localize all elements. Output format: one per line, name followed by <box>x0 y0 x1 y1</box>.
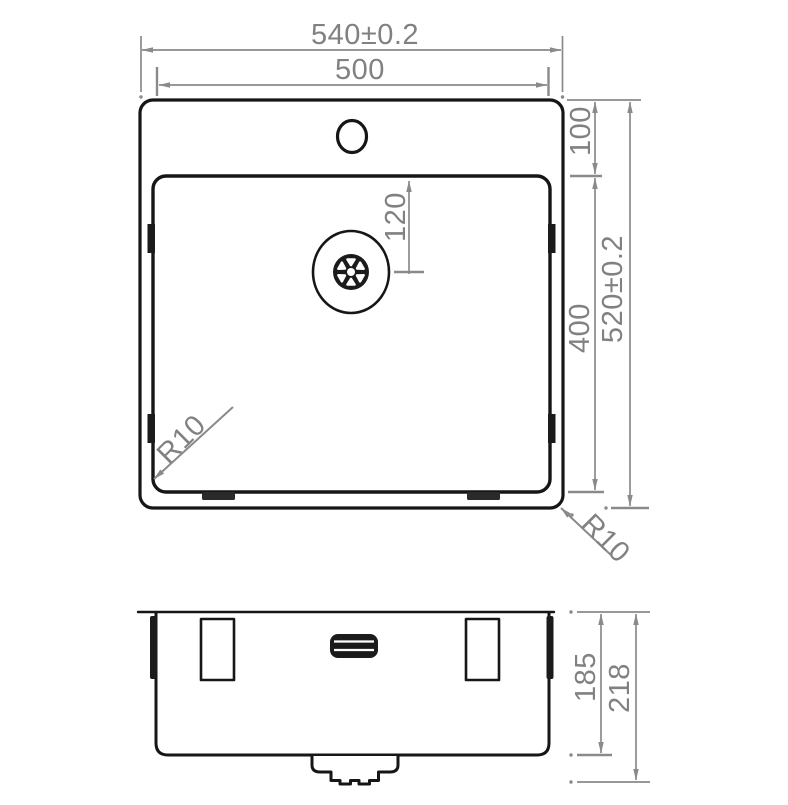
label-overall-height: 218 <box>604 663 636 713</box>
clip-tab-right-lower <box>548 414 556 443</box>
sink-technical-drawing: 540±0.2 500 100 400 520±0.2 120 R10 R10 <box>0 0 788 805</box>
edge-clip-left <box>150 616 157 679</box>
dashdot-dot <box>139 95 142 98</box>
dashdot-dot <box>604 506 607 509</box>
overflow-fitting <box>330 634 378 658</box>
label-overall-width: 540±0.2 <box>311 19 419 51</box>
label-outer-corner-radius: R10 <box>575 508 636 569</box>
label-overall-depth: 520±0.2 <box>597 235 629 343</box>
dashdot-dot <box>569 753 572 756</box>
strainer-center-hole <box>347 268 355 276</box>
top-view: 540±0.2 500 100 400 520±0.2 120 R10 R10 <box>139 19 649 569</box>
dashdot-dot <box>570 513 573 516</box>
clip-tab-right-upper <box>548 224 556 253</box>
clip-tab-left-lower <box>148 414 156 443</box>
edge-clip-right <box>547 616 554 679</box>
mounting-bracket-left <box>201 619 234 680</box>
front-view: 185 218 <box>138 610 650 784</box>
drain-strainer <box>333 254 369 290</box>
overflow-body <box>330 634 378 658</box>
front-view-dimension-labels: 185 218 <box>570 652 636 713</box>
label-inner-width: 500 <box>335 54 385 86</box>
label-rim-depth: 100 <box>565 106 597 156</box>
drawing-svg: 540±0.2 500 100 400 520±0.2 120 R10 R10 <box>0 0 788 805</box>
dashdot-dot <box>561 95 564 98</box>
dashdot-dot <box>569 610 572 613</box>
clip-tab-left-upper <box>148 224 156 253</box>
label-bowl-depth: 400 <box>564 303 596 353</box>
label-drain-offset: 120 <box>380 192 412 242</box>
dashdot-dot <box>569 780 572 783</box>
drain-fitting <box>312 756 398 784</box>
label-bowl-height: 185 <box>570 652 602 702</box>
sink-bowl <box>153 176 550 492</box>
clip-tab-bottom-right <box>467 492 500 500</box>
mounting-bracket-right <box>466 619 499 680</box>
clip-tab-bottom-left <box>202 492 235 500</box>
